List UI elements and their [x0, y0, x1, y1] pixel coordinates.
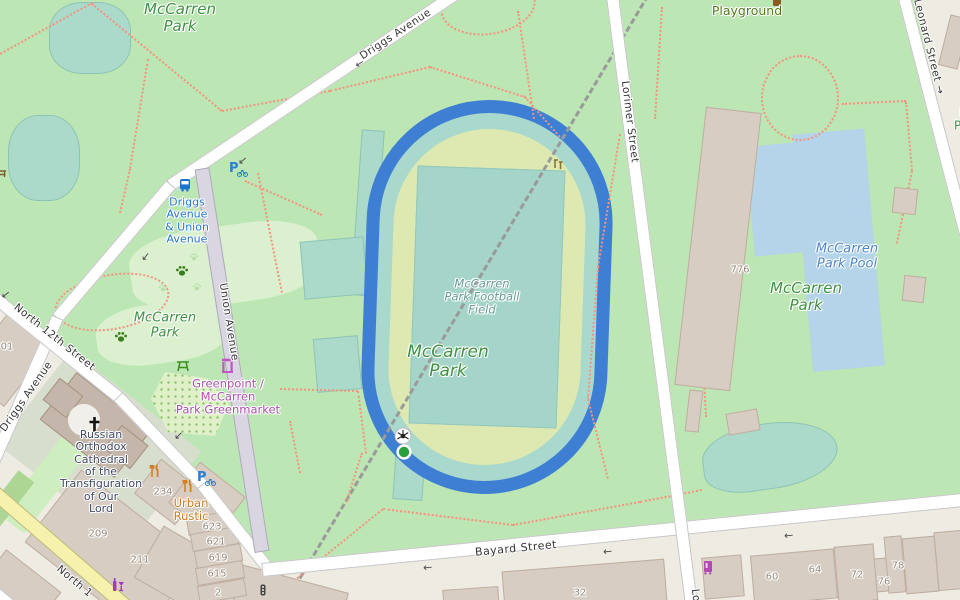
pond-area: [8, 115, 80, 201]
house-number: 2: [215, 588, 221, 599]
building-776: [674, 107, 761, 392]
house-number: 623: [202, 522, 221, 533]
map-canvas[interactable]: McCarren Park McCarren Park McCarren Par…: [0, 0, 960, 600]
building: [901, 536, 939, 595]
bus-stop-label: Driggs Avenue & Union Avenue: [165, 196, 209, 245]
footpath: [119, 169, 131, 213]
house-number: 72: [851, 570, 864, 581]
footpath: [383, 508, 513, 526]
house-number: 209: [88, 529, 107, 540]
park-label: McCarren Park: [770, 280, 842, 314]
house-number: 64: [809, 565, 822, 576]
pitch: [300, 236, 369, 299]
greenmarket-label: Greenpoint / McCarren Park Greenmarket: [176, 378, 280, 417]
playground-label: Playground: [712, 4, 782, 18]
park-label-clipped: E Pla: [954, 107, 960, 134]
park-label: McCarren Park: [407, 343, 489, 381]
footpath-loop: [761, 55, 839, 141]
house-number: 776: [730, 265, 749, 276]
oneway-arrow: ←: [423, 562, 433, 574]
house-number: 78: [892, 561, 905, 572]
parking-bicycle-icon: P: [197, 470, 207, 485]
house-number: 621: [206, 537, 225, 548]
oneway-arrow: ←: [603, 546, 613, 558]
scrub-area: [698, 414, 842, 498]
cathedral-label: Russian Orthodox Cathedral of the Transf…: [60, 429, 142, 515]
pool-label: McCarren Park Pool: [816, 242, 878, 271]
footpath: [842, 100, 906, 105]
footpath: [513, 501, 640, 526]
house-number: 76: [878, 577, 891, 588]
footpath: [905, 102, 913, 171]
building: [750, 548, 838, 600]
footpath: [129, 59, 149, 169]
footpath: [289, 421, 301, 473]
footpath: [654, 7, 663, 119]
oneway-arrow: ←: [784, 530, 794, 542]
house-number: 234: [153, 487, 172, 498]
parking-bicycle-icon: P: [229, 161, 239, 176]
park-label: McCarren Park: [134, 311, 196, 340]
street-label-driggs: Driggs Avenue: [358, 7, 434, 63]
house-number: 211: [130, 555, 149, 566]
building: [892, 187, 919, 215]
building: [902, 275, 927, 303]
restaurant-label: Urban Rustic: [174, 497, 209, 523]
house-number: 615: [207, 569, 226, 580]
house-number: 32: [574, 588, 587, 599]
house-number: 619: [208, 553, 227, 564]
building: [933, 529, 960, 590]
pitch: [313, 335, 363, 393]
pond-area: [49, 2, 131, 74]
house-number: 01: [1, 342, 14, 353]
house-number: 60: [766, 572, 779, 583]
footpath: [245, 180, 323, 216]
footpath: [430, 66, 526, 98]
park-label: McCarren Park: [144, 1, 216, 35]
building: [685, 389, 704, 432]
footpath-loop: [436, 0, 539, 41]
football-field-label: McCarren Park Football Field: [445, 278, 520, 317]
